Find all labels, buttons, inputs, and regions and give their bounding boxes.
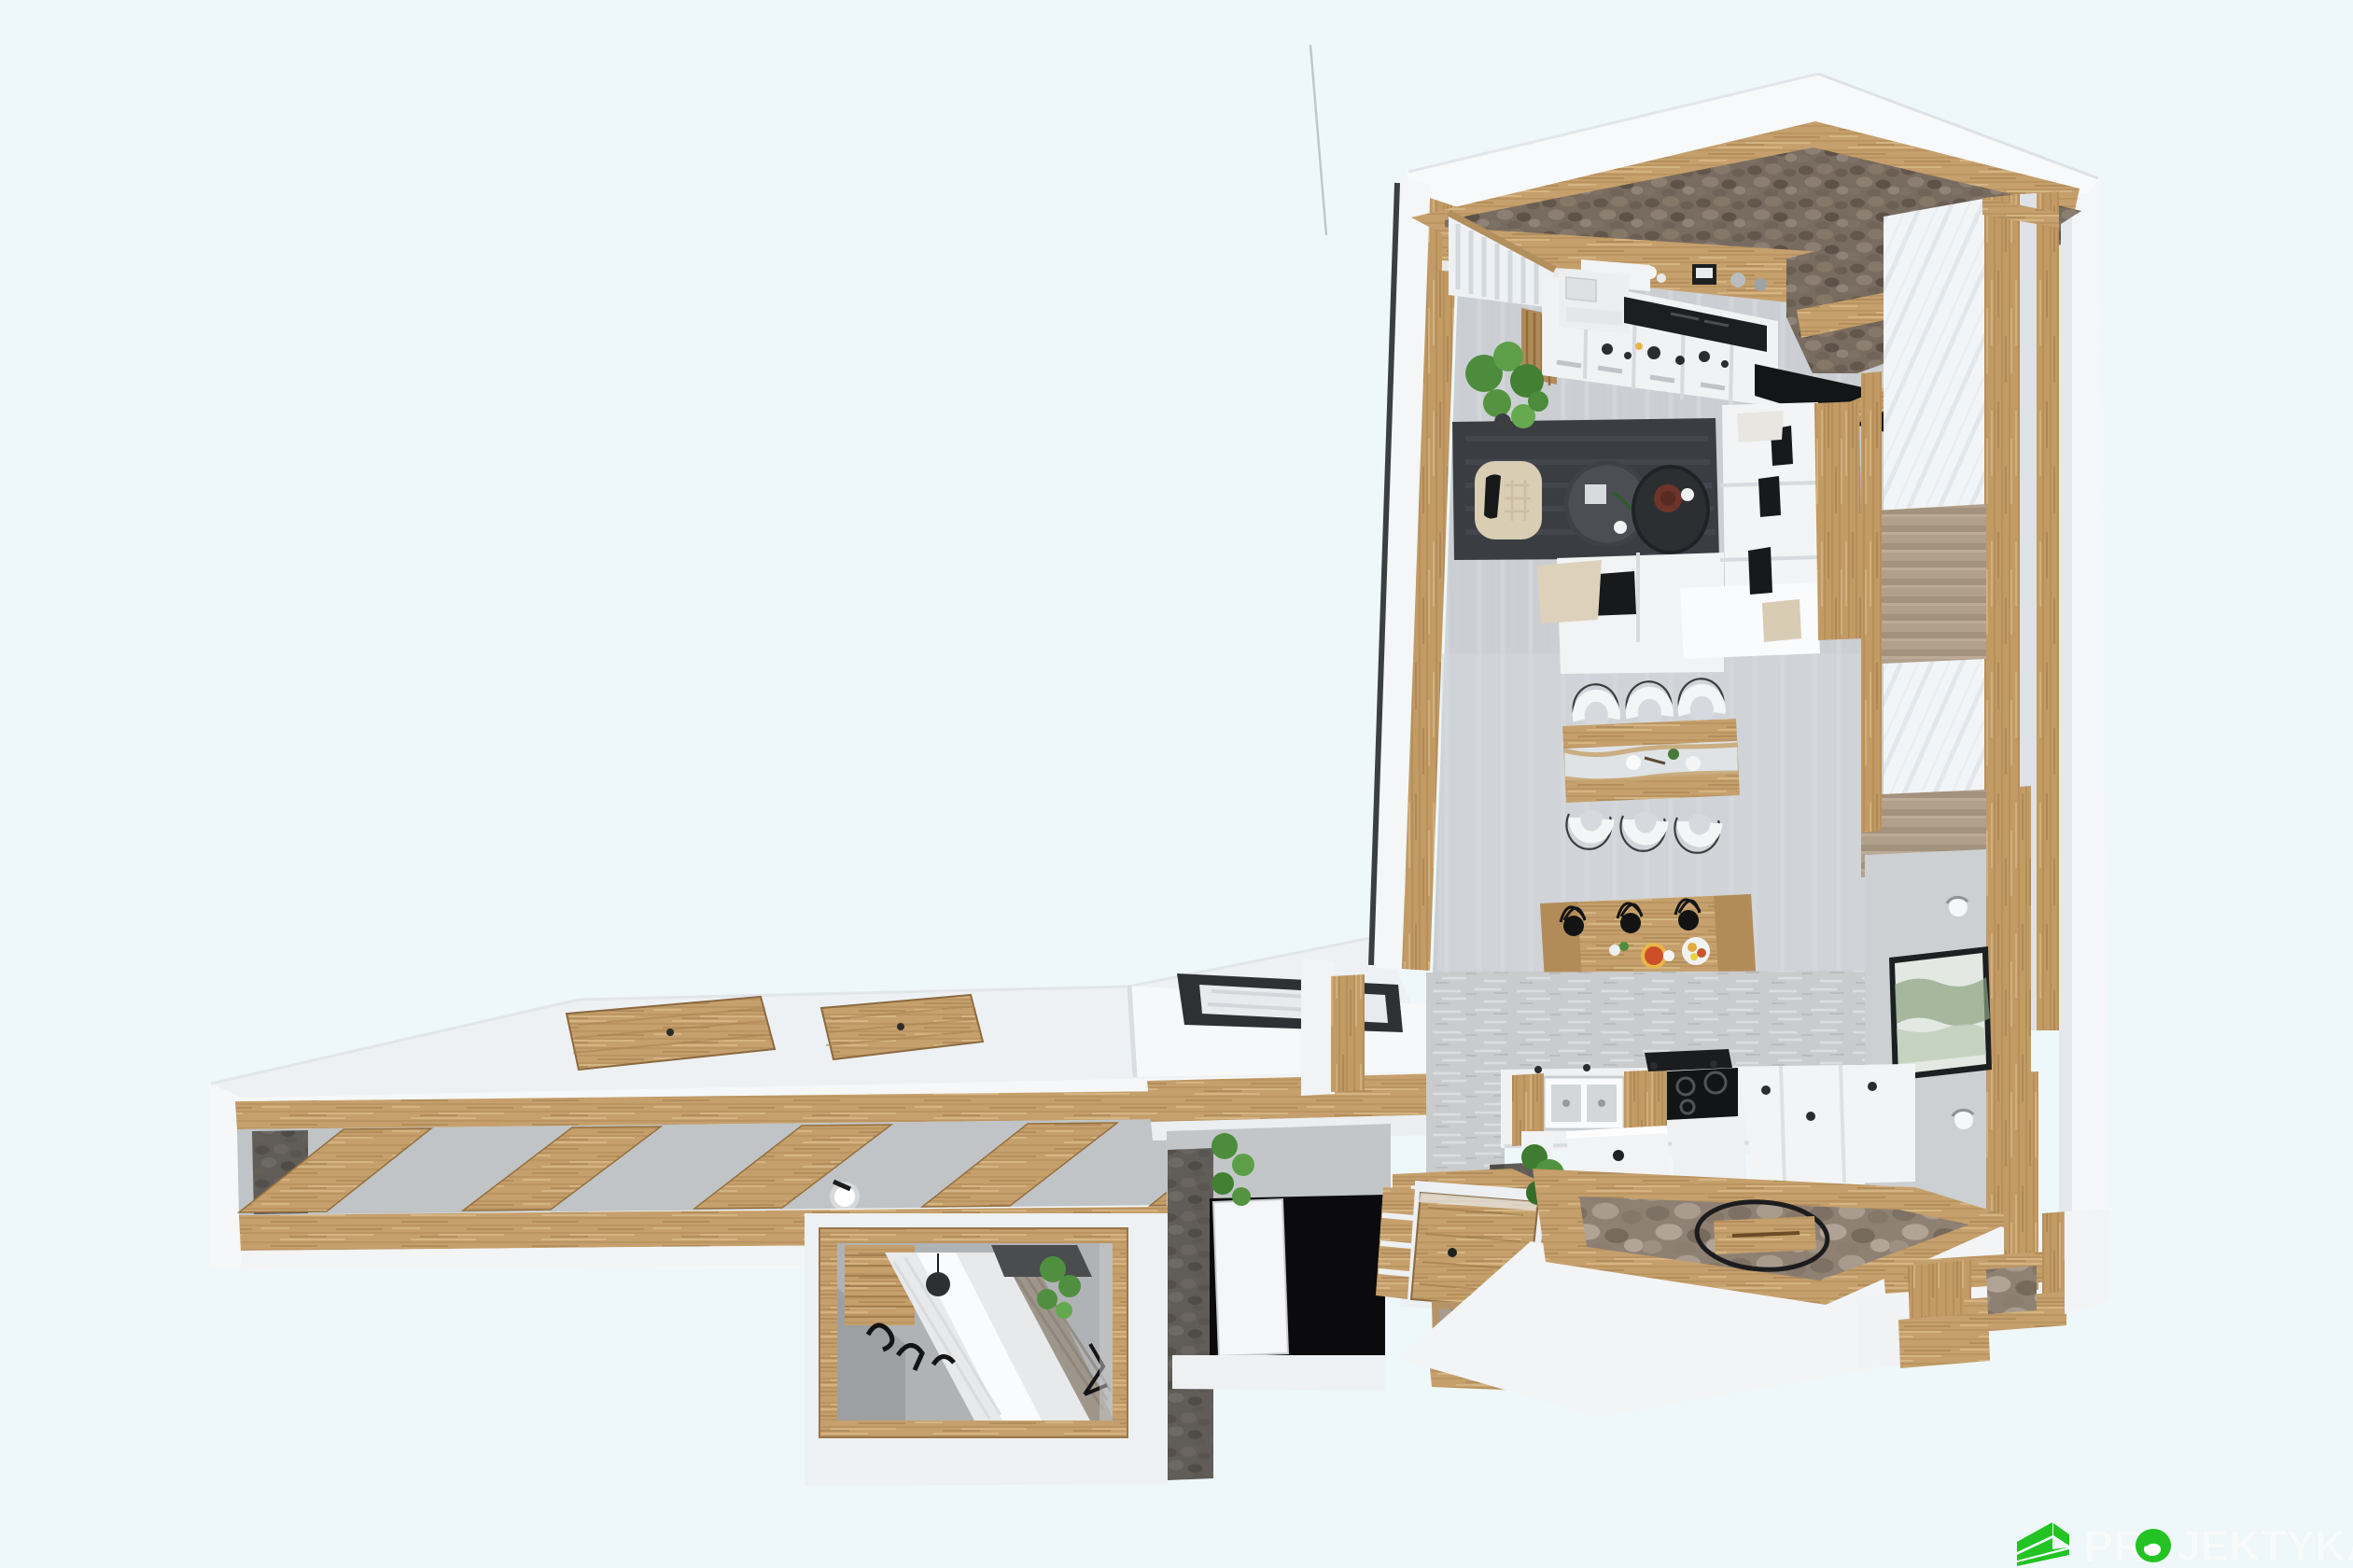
svg-text:JEKTYKA: JEKTYKA bbox=[2177, 1521, 2353, 1568]
